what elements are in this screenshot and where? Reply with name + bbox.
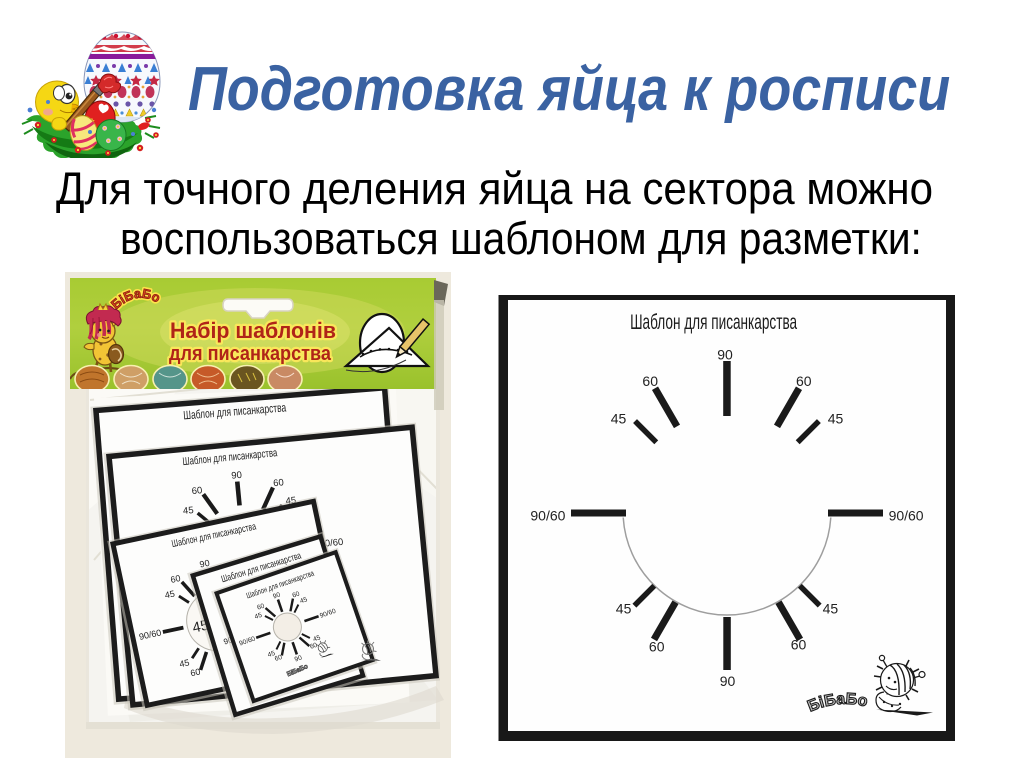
svg-text:60: 60	[796, 373, 812, 389]
svg-text:45: 45	[179, 657, 191, 669]
svg-text:60: 60	[189, 666, 201, 678]
svg-text:45: 45	[616, 600, 632, 616]
svg-text:90/60: 90/60	[530, 508, 565, 524]
svg-text:Набір шаблонів: Набір шаблонів	[170, 318, 336, 343]
svg-text:45: 45	[183, 505, 195, 517]
svg-text:для писанкарства: для писанкарства	[169, 342, 332, 365]
svg-text:90: 90	[231, 470, 243, 482]
svg-text:45: 45	[164, 588, 176, 600]
svg-text:60: 60	[191, 485, 203, 497]
svg-text:90: 90	[717, 346, 733, 362]
svg-text:90: 90	[720, 673, 736, 689]
svg-text:60: 60	[791, 637, 807, 653]
svg-text:45: 45	[828, 410, 844, 426]
svg-text:Шаблон для писанкарства: Шаблон для писанкарства	[630, 311, 797, 334]
svg-text:60: 60	[642, 373, 658, 389]
svg-text:60: 60	[170, 573, 182, 585]
svg-text:90/60: 90/60	[889, 508, 924, 524]
svg-text:45: 45	[823, 600, 839, 616]
svg-text:60: 60	[273, 477, 285, 489]
svg-text:60: 60	[649, 639, 665, 655]
svg-text:45: 45	[611, 410, 627, 426]
